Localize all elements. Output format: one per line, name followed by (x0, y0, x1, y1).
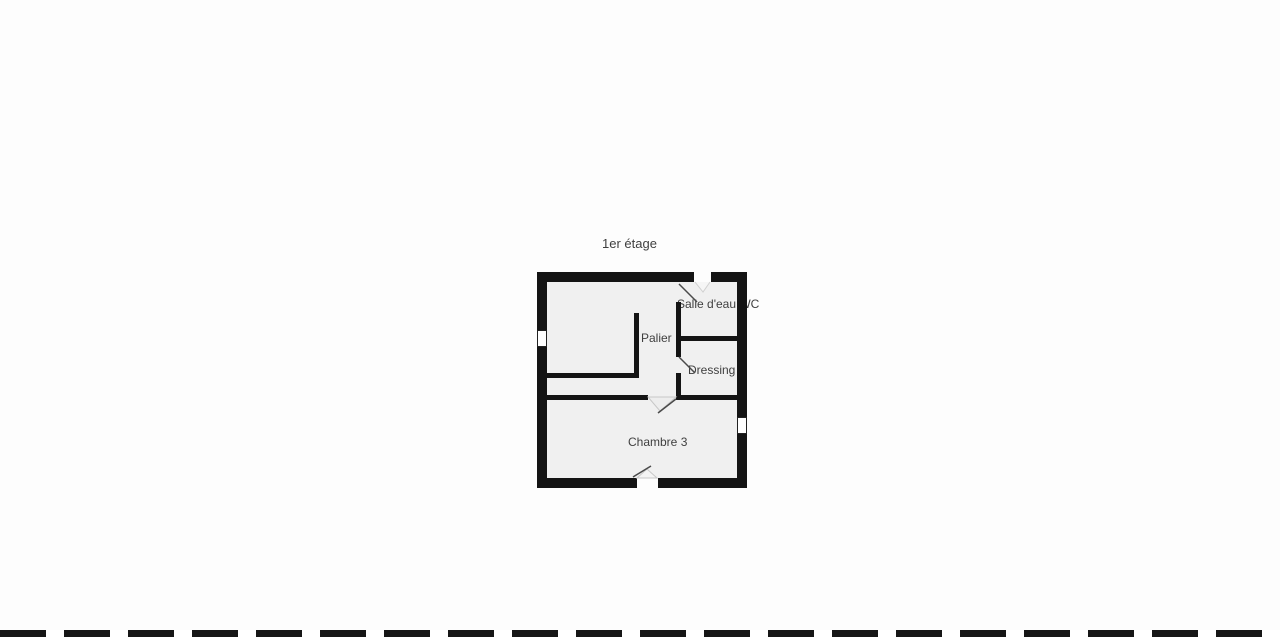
wall-palier-chambre (547, 395, 648, 400)
door-opening-bottom (637, 478, 658, 488)
window-symbol-left (537, 330, 547, 347)
wall-dressing-chambre (676, 395, 737, 400)
floorplan-page: { "floorplan": { "title": "1er \u00e9tag… (0, 0, 1280, 637)
wall-right (737, 272, 747, 488)
floorplan-drawing: Salle d'eau WC Palier Dressing Chambre 3 (537, 272, 747, 488)
stair-wall-horizontal (547, 373, 639, 378)
room-label-chambre-3: Chambre 3 (628, 435, 687, 449)
wall-bottom-right (658, 478, 747, 488)
bottom-dashed-strip (0, 630, 1280, 637)
wall-left (537, 272, 547, 488)
floor-title: 1er étage (602, 236, 657, 251)
wall-top-left (537, 272, 694, 282)
door-opening-top (694, 272, 711, 282)
wall-salle-deau-dressing (681, 336, 737, 341)
wall-palier-salle-deau (676, 302, 681, 357)
stair-wall-vertical (634, 313, 639, 378)
room-label-palier: Palier (641, 331, 672, 345)
room-label-dressing: Dressing (688, 363, 735, 377)
wall-top-right (711, 272, 747, 282)
window-symbol-right (737, 417, 747, 434)
wall-bottom-left (537, 478, 637, 488)
